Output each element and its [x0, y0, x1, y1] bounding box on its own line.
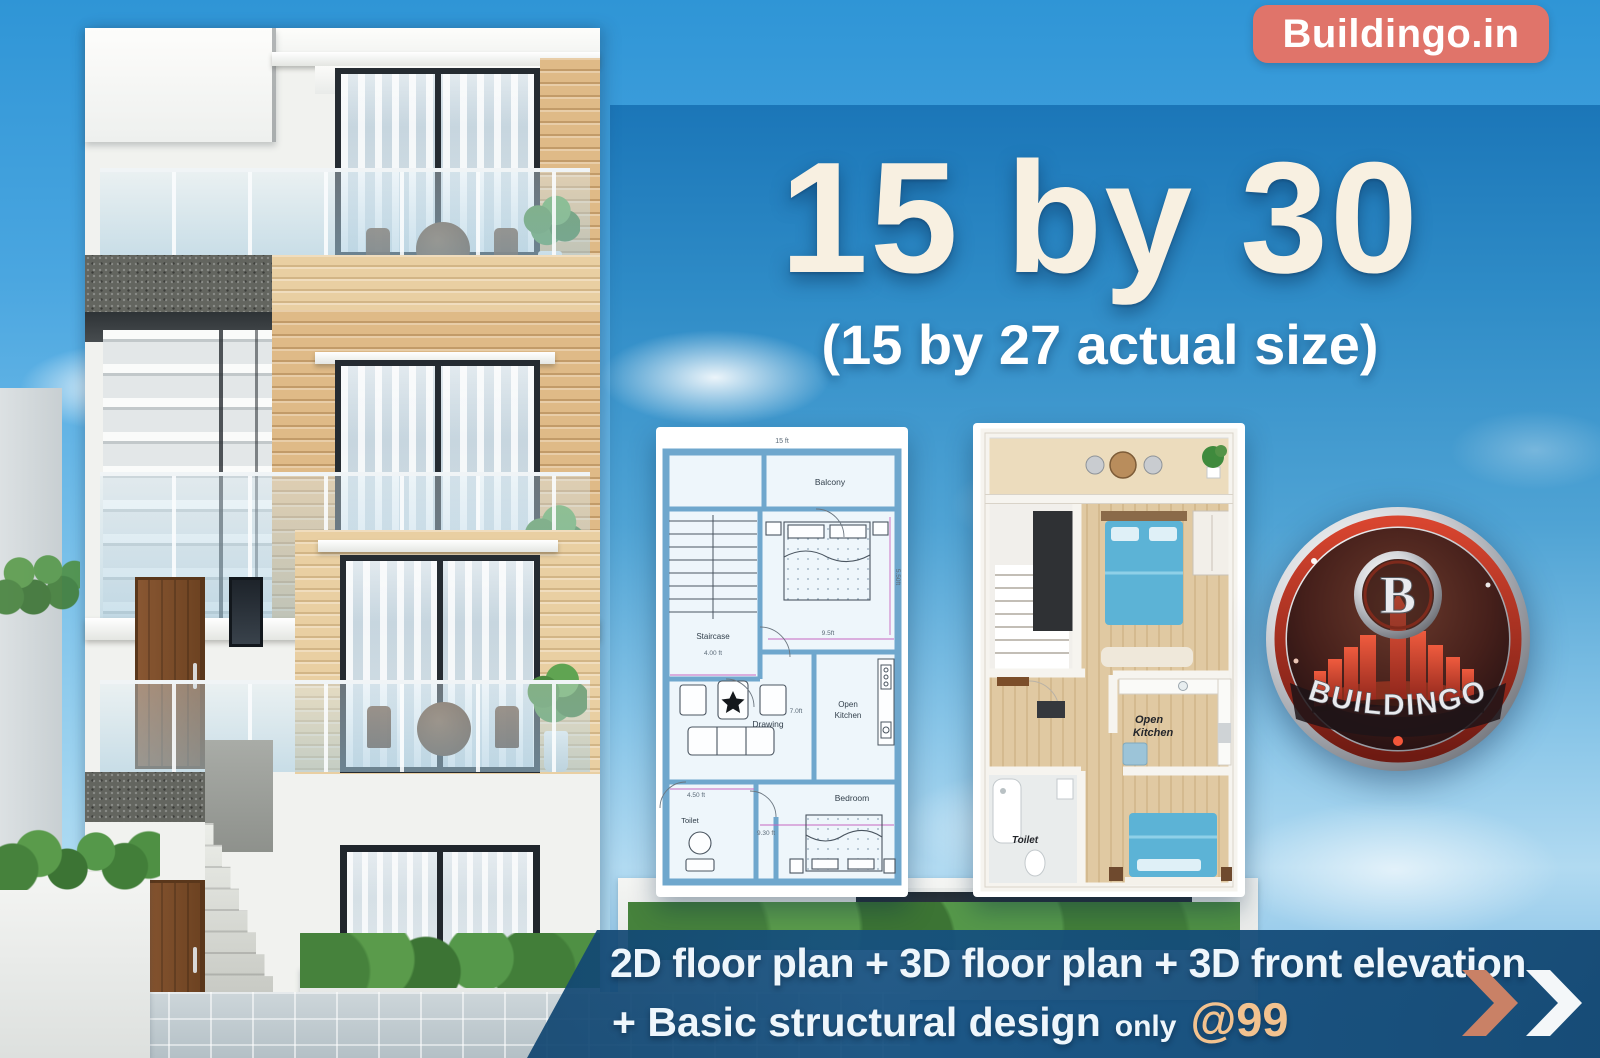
bathtub [993, 779, 1021, 843]
planter-wall [0, 872, 150, 1058]
offer-line-2-text: + Basic structural design [612, 999, 1101, 1046]
stair-dark-wall [1033, 511, 1073, 631]
plan2d-bedroom-label: Bedroom [835, 793, 870, 803]
plan2d-balcony-label: Balcony [815, 477, 846, 487]
plan2d-bed1-height-dim: 5.50ft [894, 569, 901, 585]
offer-price: @99 [1190, 992, 1288, 1047]
3d-floor-plan: Open Kitchen Toilet [973, 423, 1245, 897]
wood-band [272, 255, 600, 311]
hero-subtitle: (15 by 27 actual size) [640, 312, 1560, 377]
2d-floor-plan-card: 15 ft Balcony Staircase 4.00 ft 9.5ft 5.… [656, 427, 908, 897]
plan2d-kitchen-label-2: Kitchen [835, 711, 862, 720]
stair-soffit [205, 740, 273, 852]
plan2d-stair-dim: 4.00 ft [704, 650, 722, 657]
stone-band [85, 255, 272, 312]
roof-tower [85, 28, 276, 142]
logo-letter: B [1380, 565, 1416, 625]
plan2d-bed1-width-dim: 9.5ft [822, 630, 835, 637]
sparkle-icon [1486, 583, 1491, 588]
tree-foliage [0, 520, 80, 630]
buildingo-logo-badge: B BUILDINGO [1262, 503, 1534, 775]
offer-only-text: only [1115, 1010, 1177, 1044]
chevron-right-icon [1526, 970, 1584, 1036]
sparkle-icon [1294, 659, 1299, 664]
hero-title: 15 by 30 [640, 128, 1560, 309]
door-shade [318, 540, 558, 552]
plan2d-toilet-label: Toilet [681, 816, 699, 825]
plan2d-drawing-dim: 7.0ft [790, 708, 803, 715]
sparkle-icon [1393, 736, 1403, 746]
buildingo-logo: B BUILDINGO [1262, 503, 1534, 775]
cta-arrows[interactable] [1462, 970, 1584, 1036]
balcony-chair [1086, 456, 1104, 474]
plan3d-kitchen-label-2: Kitchen [1133, 727, 1174, 739]
small-window [229, 577, 263, 647]
balcony-chair [1144, 456, 1162, 474]
3d-floor-plan-card: Open Kitchen Toilet [973, 423, 1245, 897]
promo-poster: Buildingo.in 15 by 30 (15 by 27 actual s… [0, 0, 1600, 1058]
shrubs [0, 820, 160, 890]
glass-railing [100, 680, 590, 772]
glass-railing [100, 168, 590, 258]
2d-floor-plan: 15 ft Balcony Staircase 4.00 ft 9.5ft 5.… [656, 427, 908, 897]
door-top [997, 677, 1029, 686]
offer-line-1: 2D floor plan + 3D floor plan + 3D front… [610, 940, 1526, 987]
site-badge[interactable]: Buildingo.in [1253, 5, 1549, 63]
plan2d-bed2-dim: 9.30 ft [757, 830, 775, 837]
plan2d-drawing-label: Drawing [752, 719, 783, 729]
tv [1037, 701, 1065, 718]
chevron-right-icon [1462, 970, 1520, 1036]
plan2d-toilet-dim: 4.50 ft [687, 792, 705, 799]
offer-line-2: + Basic structural design only @99 [612, 992, 1289, 1047]
plan3d-toilet-label: Toilet [1012, 835, 1039, 846]
shrubs [300, 933, 600, 988]
building-facade [85, 28, 600, 1000]
wc [1025, 850, 1045, 876]
plan2d-kitchen-label: Open [838, 700, 858, 709]
balcony-table [1110, 452, 1136, 478]
plan2d-dim-top: 15 ft [775, 438, 789, 445]
site-badge-label: Buildingo.in [1282, 12, 1519, 57]
plan2d-staircase-label: Staircase [696, 632, 730, 641]
plan3d-kitchen-label: Open [1135, 714, 1163, 726]
sparkle-icon [1311, 558, 1317, 564]
